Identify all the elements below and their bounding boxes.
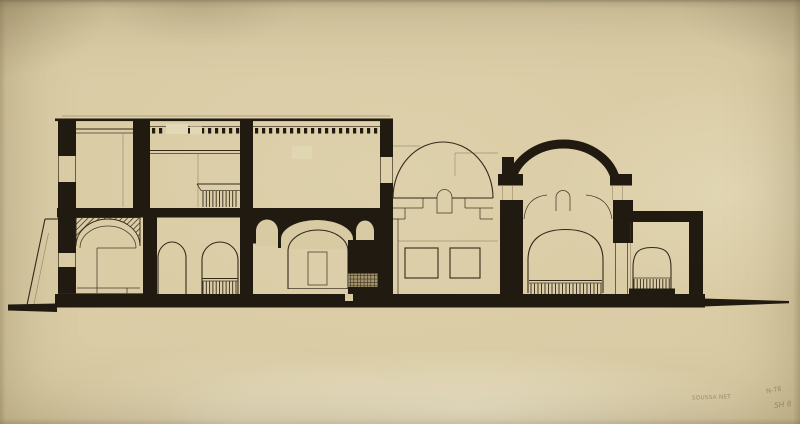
section-drawing — [0, 0, 800, 424]
main-arch-opening — [528, 230, 603, 294]
correction-patch — [292, 146, 312, 159]
door-opening — [405, 248, 438, 278]
balusters — [634, 279, 669, 290]
scanned-drawing: SOUSSA NET N-78 SH 8 — [0, 0, 800, 424]
wall-pier — [500, 200, 523, 297]
middle-arcade — [253, 217, 393, 302]
buttress — [27, 219, 58, 305]
arch-balustrade — [529, 281, 602, 296]
wall-niche — [308, 252, 327, 285]
pendentive-arc — [586, 195, 612, 219]
correction-patch — [166, 124, 188, 134]
balusters — [203, 281, 236, 295]
drum-window — [437, 190, 452, 214]
lower-floor-left — [58, 217, 253, 298]
lower-balustrade — [202, 279, 238, 296]
stepped-cornice — [393, 198, 493, 219]
wall-pier — [133, 121, 150, 208]
door-opening — [450, 248, 480, 278]
arched-doorway — [158, 242, 186, 296]
arcade-arch — [256, 220, 278, 247]
floor-slab — [57, 208, 393, 218]
sheet-number: SH 8 — [774, 399, 792, 410]
wall-pier — [143, 217, 157, 298]
wall-pier — [240, 121, 253, 208]
dome-window — [556, 191, 570, 212]
dome-section — [498, 144, 633, 297]
left-building-section — [55, 116, 393, 300]
ground-line — [8, 294, 789, 312]
dome-shell — [511, 144, 616, 182]
hatched-spandrel — [76, 218, 140, 247]
right-ground-taper — [703, 299, 789, 307]
balusters — [203, 191, 236, 207]
annex-right-wall — [689, 222, 703, 299]
right-annex — [628, 211, 703, 299]
dome-elevation — [393, 142, 498, 296]
correction-patch — [190, 127, 202, 135]
roof-line — [55, 119, 393, 122]
upper-balustrade — [197, 184, 245, 207]
left-ground-apron — [8, 304, 57, 313]
pendentive-arc — [524, 195, 547, 219]
annex-roof-slab — [628, 211, 703, 222]
balusters — [531, 284, 601, 296]
niche-arch — [633, 248, 671, 290]
wall-pier — [240, 217, 253, 298]
niche-balustrade — [629, 278, 675, 294]
